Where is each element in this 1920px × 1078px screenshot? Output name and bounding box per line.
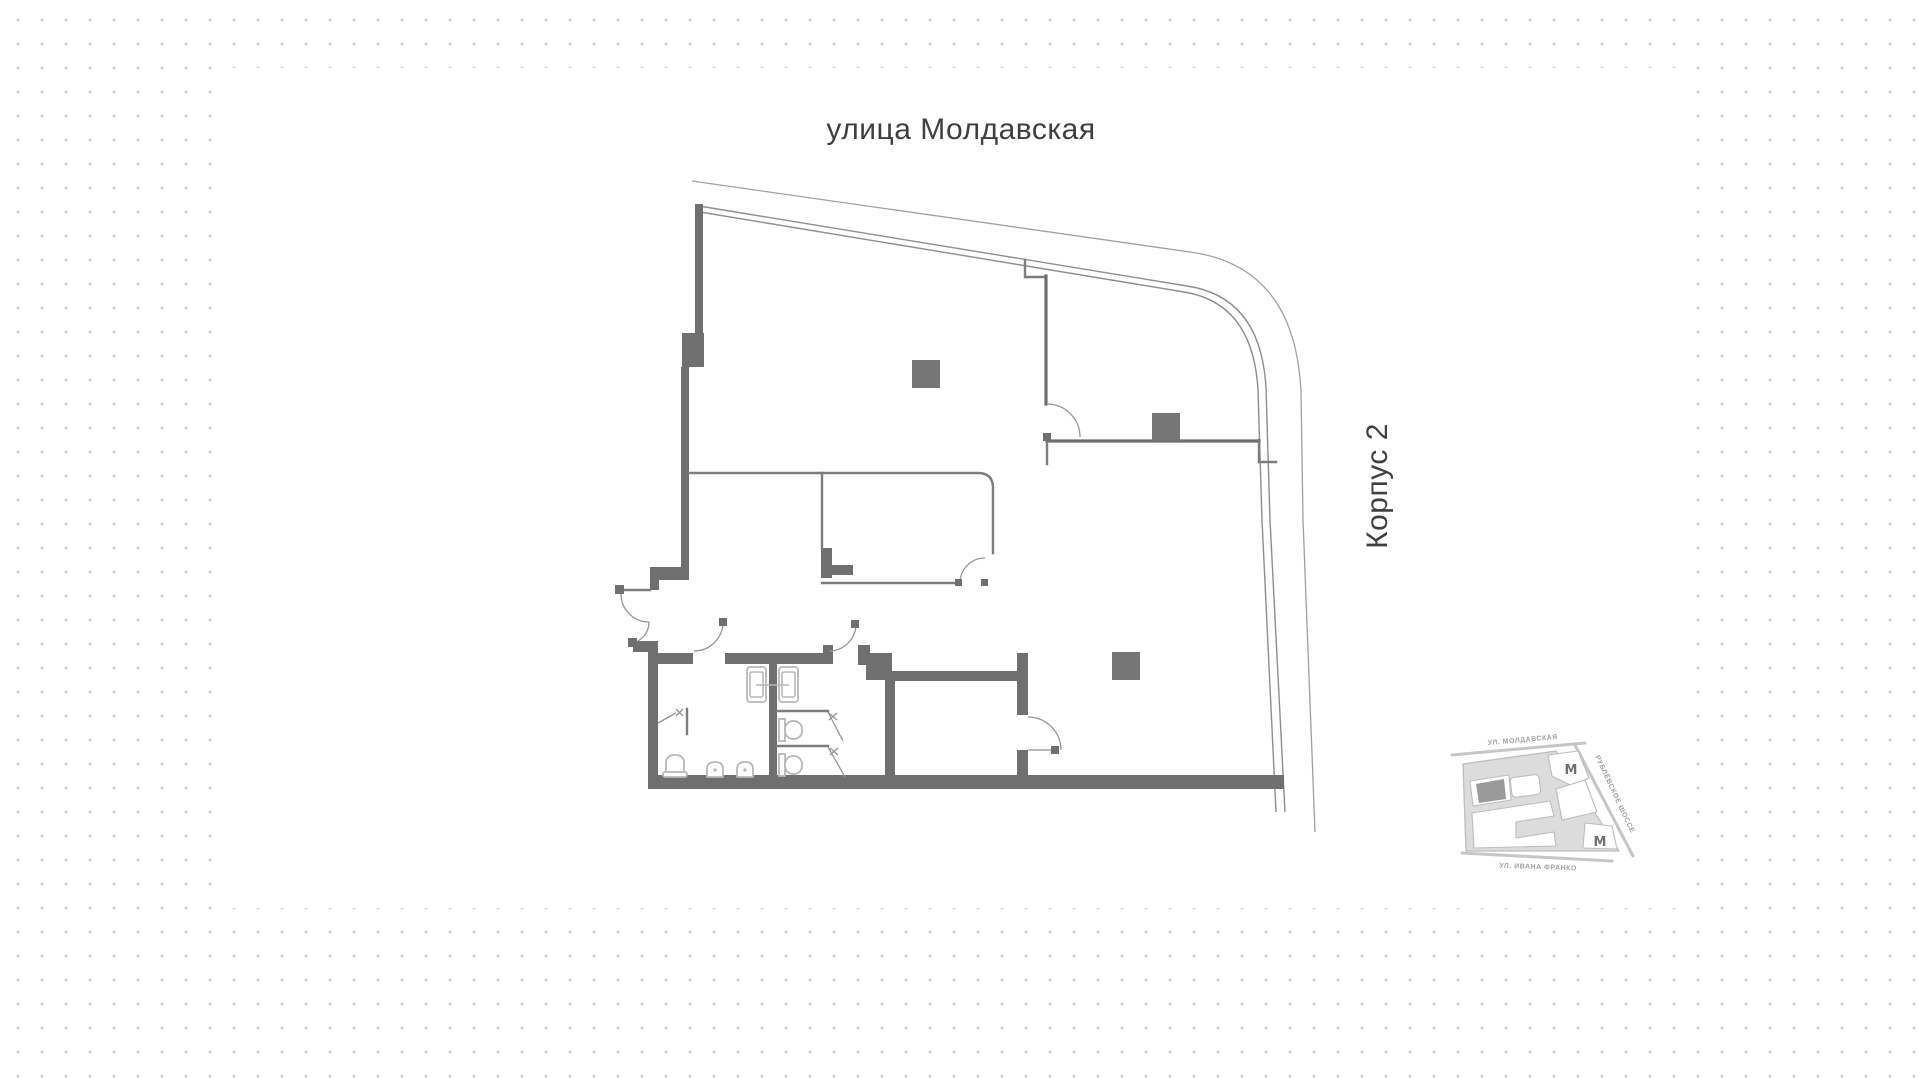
sink-drain (713, 768, 716, 771)
door-hinge-post (615, 585, 624, 594)
wall-segment (650, 580, 659, 590)
metro-icon: М (1565, 763, 1578, 778)
minimap-street-label-bottom: УЛ. ИВАНА ФРАНКО (1499, 863, 1577, 873)
minimap-street-line-bottom (1462, 853, 1612, 861)
wall-segment (892, 671, 1017, 681)
fixtures (663, 667, 802, 777)
column (912, 360, 940, 388)
site-minimap: М М УЛ. МОЛДАВСКАЯ РУБЛЁВСКОЕ ШОССЕ УЛ. … (1452, 734, 1636, 872)
wall-segment (695, 204, 703, 333)
door-hinge-post (851, 620, 859, 628)
door-hinge-post (981, 579, 988, 586)
sink-drain (743, 768, 746, 771)
wall-segment (832, 565, 853, 575)
metro-icon: М (1594, 835, 1607, 850)
door-hinge-post (1051, 746, 1059, 754)
toilet-bowl (785, 721, 802, 739)
wc-lobby-door-arc (829, 624, 856, 651)
column (1152, 413, 1180, 441)
room-door-arc (1047, 404, 1080, 437)
door-hinge-post (628, 638, 637, 647)
wall-segment (648, 653, 693, 664)
entry-door-arc (621, 594, 649, 622)
stall-door-leaf (828, 712, 843, 741)
partition-rounded (689, 473, 993, 553)
wall-segment (823, 645, 833, 664)
wall-segment (777, 653, 823, 664)
columns (912, 360, 1180, 680)
bathroom-door-arc (694, 622, 723, 651)
wall-segment (1017, 653, 1028, 715)
wall-segment (821, 548, 832, 578)
wall-segment (885, 680, 895, 776)
minimap-building (1510, 774, 1541, 797)
wall-pilaster (682, 333, 704, 367)
wall-segment (769, 653, 777, 786)
shower-door-hinge (676, 709, 683, 716)
storeroom-door-arc (1028, 717, 1061, 750)
shower-door-leaf (658, 713, 676, 723)
floor-plan-canvas: улица Молдавская Корпус 2 М М УЛ. МОЛДАВ… (0, 0, 1920, 1078)
toilet-bowl (785, 756, 802, 774)
wall-corner-block (866, 653, 892, 680)
facade-line-inner (700, 212, 1276, 812)
door-hinge-post (1043, 433, 1051, 441)
door-hinge-post (955, 579, 962, 586)
toilet-base (663, 772, 687, 777)
door-hinge-post (719, 618, 727, 626)
wall-segment (681, 367, 689, 570)
column (1112, 652, 1140, 680)
wall-segment (650, 567, 689, 580)
building-label-right: Корпус 2 (1361, 423, 1394, 549)
toilet-icon (666, 755, 684, 773)
stall-door-leaf (828, 747, 845, 777)
street-label-top: улица Молдавская (826, 113, 1095, 146)
